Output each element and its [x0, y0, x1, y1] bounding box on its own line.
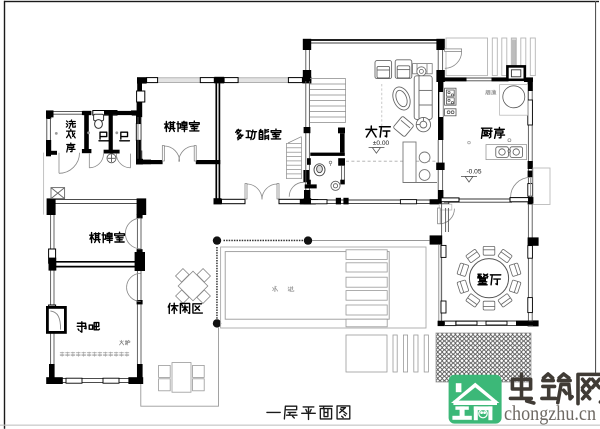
svg-text:chongzhu.cn: chongzhu.cn: [504, 401, 596, 425]
svg-text:-0.05: -0.05: [466, 168, 481, 175]
svg-text:±0.00: ±0.00: [373, 140, 390, 147]
